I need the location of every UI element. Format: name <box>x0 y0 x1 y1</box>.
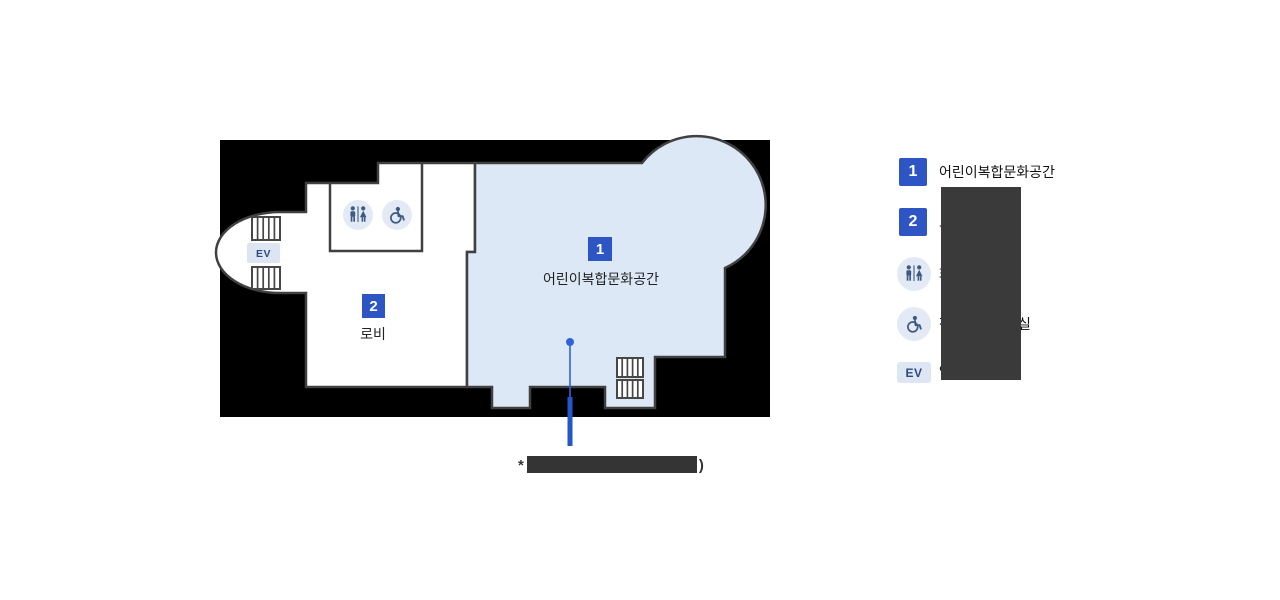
callout-caption: *) <box>518 456 704 474</box>
restroom-icon <box>897 257 931 291</box>
caption-suffix: ) <box>699 457 704 474</box>
legend-item-elevator: EV 엘 <box>899 362 931 383</box>
stairs-icon <box>617 380 643 398</box>
elevator-badge: EV <box>897 362 931 383</box>
area1-badge: 1 <box>588 237 612 261</box>
area2-badge: 2 <box>362 294 385 318</box>
elevator-badge: EV <box>247 243 280 263</box>
redacted-caption-overlay <box>527 456 697 473</box>
restroom-icon <box>343 200 373 230</box>
stairs-icon <box>252 217 280 240</box>
svg-text:EV: EV <box>256 248 271 260</box>
wheelchair-icon <box>382 200 412 230</box>
caption-prefix: * <box>518 457 524 474</box>
legend-item-wheelchair: 장 실 <box>899 307 931 341</box>
redacted-label-overlay <box>941 187 1021 380</box>
legend-item-2: 2 로 <box>899 208 927 236</box>
area2-label: 로비 <box>360 326 386 342</box>
svg-text:1: 1 <box>596 241 604 258</box>
legend-item-1: 1 어린이복합문화공간 <box>899 158 927 186</box>
legend-badge-1: 1 <box>899 158 927 186</box>
svg-text:2: 2 <box>369 298 377 315</box>
legend-label-1: 어린이복합문화공간 <box>939 158 1055 186</box>
area1-label: 어린이복합문화공간 <box>543 271 659 287</box>
stairs-icon <box>617 358 643 377</box>
legend-badge-2: 2 <box>899 208 927 236</box>
floor-plan: EV 1 어린이복합문화공간 2 로비 <box>205 128 785 453</box>
legend-item-restroom: 화 <box>899 257 931 291</box>
wheelchair-icon <box>897 307 931 341</box>
stairs-icon <box>252 267 280 289</box>
